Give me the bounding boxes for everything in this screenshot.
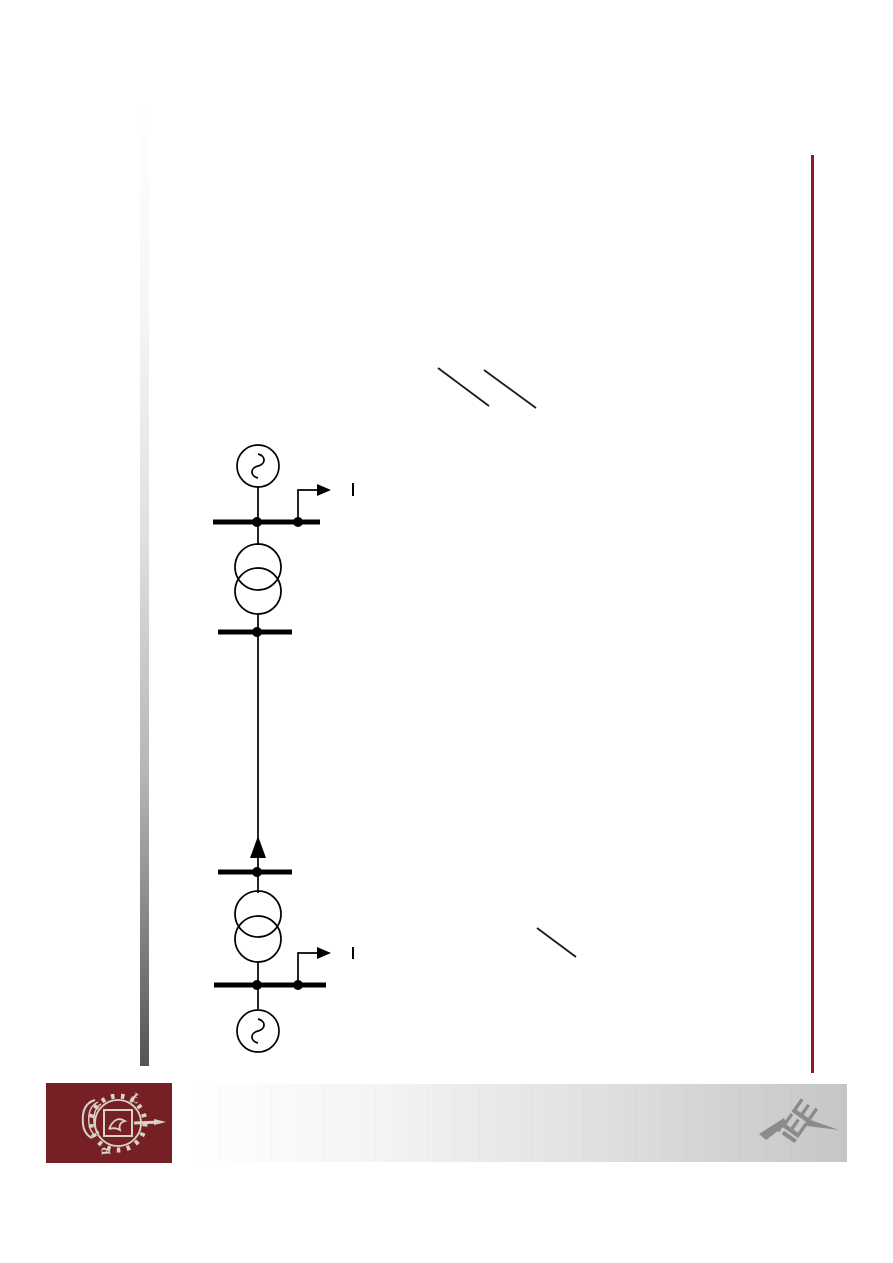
svg-text:P: P bbox=[98, 1146, 114, 1155]
busbar-bottom bbox=[214, 980, 326, 990]
tap-arrow-bottom bbox=[298, 947, 331, 981]
arrowhead-right-icon bbox=[317, 484, 331, 496]
arrowhead-right-icon bbox=[317, 947, 331, 959]
generator-top-symbol bbox=[237, 445, 279, 520]
busbar-lower-mid bbox=[218, 867, 292, 877]
busbar-upper-mid bbox=[218, 627, 292, 637]
politechnika-logo: Ł P bbox=[46, 1083, 172, 1163]
iee-logo-icon: iEE bbox=[759, 1094, 839, 1148]
transmission-line bbox=[250, 634, 266, 870]
arrowhead-up-icon bbox=[250, 836, 266, 858]
transformer-top-symbol bbox=[235, 524, 281, 630]
slash-annotation-bottom bbox=[537, 928, 576, 957]
transformer-bottom-symbol bbox=[235, 874, 281, 983]
slash-annotation-top-1 bbox=[438, 368, 489, 406]
slide-canvas: Ł P iEE bbox=[0, 0, 893, 1263]
generator-bottom-symbol bbox=[237, 987, 279, 1052]
sine-wave-icon bbox=[252, 454, 264, 478]
sine-wave-icon bbox=[252, 1019, 264, 1043]
iee-logo: iEE bbox=[757, 1088, 841, 1158]
schematic-strokes bbox=[213, 368, 576, 1052]
slash-annotation-top-2 bbox=[484, 370, 536, 408]
tap-arrow-top bbox=[298, 484, 331, 518]
busbar-top bbox=[213, 517, 320, 527]
one-line-diagram bbox=[0, 0, 893, 1263]
slash-annotations bbox=[438, 368, 576, 957]
iee-letters: iEE bbox=[772, 1094, 824, 1148]
